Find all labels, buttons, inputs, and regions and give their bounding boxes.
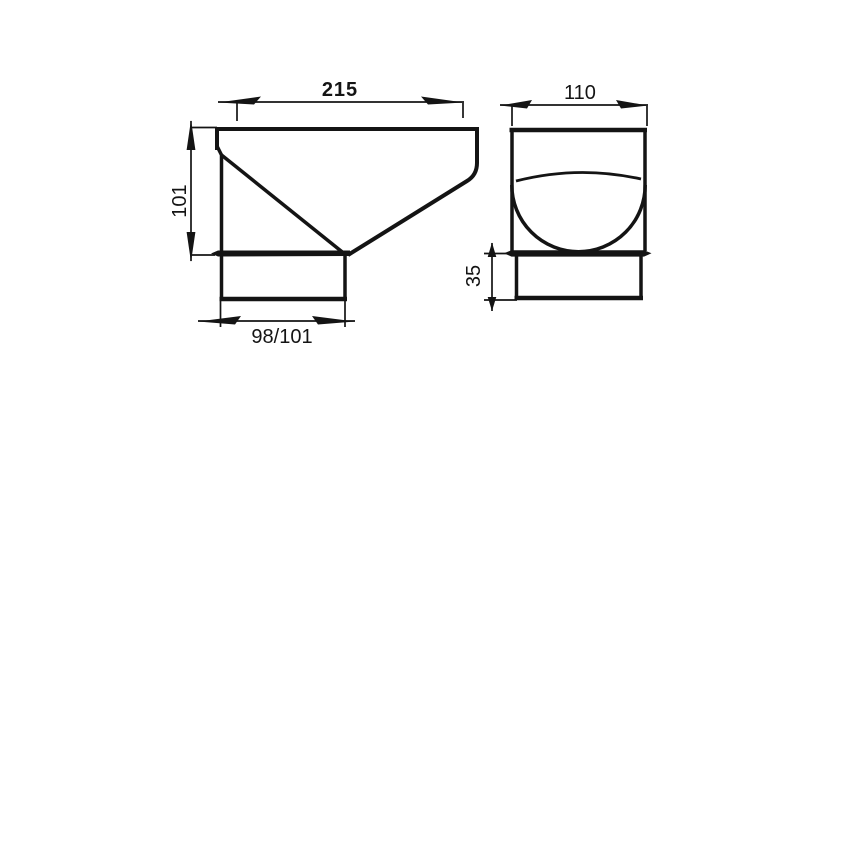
dim-label-bottom-width: 98/101 (232, 327, 332, 347)
dimension-side-height (187, 120, 217, 262)
side-view-flange-band (211, 251, 350, 257)
arrowhead-up-icon (488, 243, 497, 258)
front-view (504, 130, 652, 298)
arrowhead-left-icon (218, 97, 261, 105)
dim-label-front-width: 110 (540, 83, 620, 103)
dim-label-side-height: 101 (170, 161, 190, 241)
arrowhead-down-icon (488, 297, 497, 311)
dimension-bottom-width (198, 301, 355, 327)
technical-drawing-canvas: 215 101 98/101 110 35 (0, 0, 850, 850)
dimension-collar-height (484, 243, 517, 312)
front-view-seam-arc (516, 172, 641, 181)
dim-label-top-width: 215 (300, 80, 380, 100)
front-view-flange-band (504, 250, 652, 256)
drawing-linework (0, 0, 850, 850)
side-view (211, 129, 477, 299)
side-view-outline (217, 129, 477, 255)
arrowhead-right-icon (421, 97, 464, 105)
arrowhead-up-icon (187, 120, 196, 150)
dim-label-collar-height: 35 (464, 246, 484, 306)
front-view-spigot-semicircle (512, 185, 645, 252)
side-view-left-edge (217, 146, 222, 299)
side-view-left-diagonal (222, 155, 347, 255)
